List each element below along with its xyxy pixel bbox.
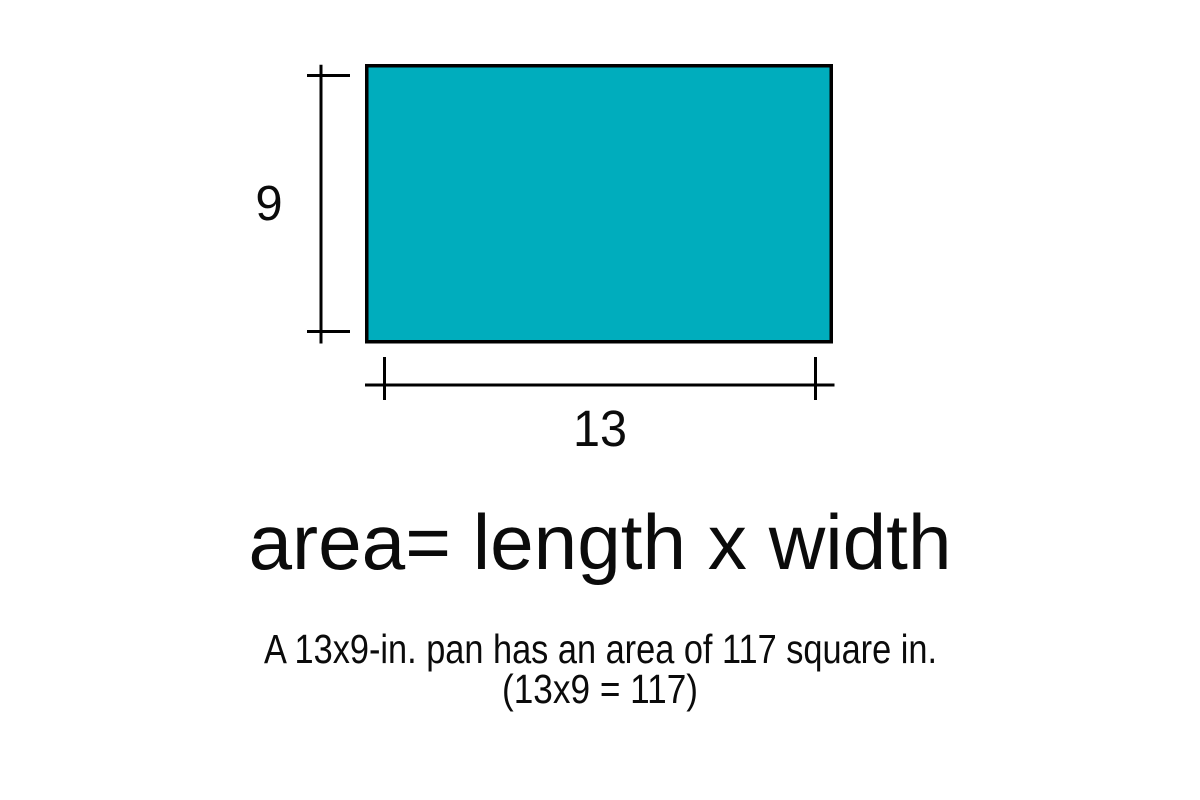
svg-text:area= length x width: area= length x width: [249, 498, 952, 586]
svg-text:(13x9 = 117): (13x9 = 117): [502, 666, 698, 712]
svg-text:13: 13: [573, 400, 627, 457]
svg-text:9: 9: [255, 177, 282, 231]
